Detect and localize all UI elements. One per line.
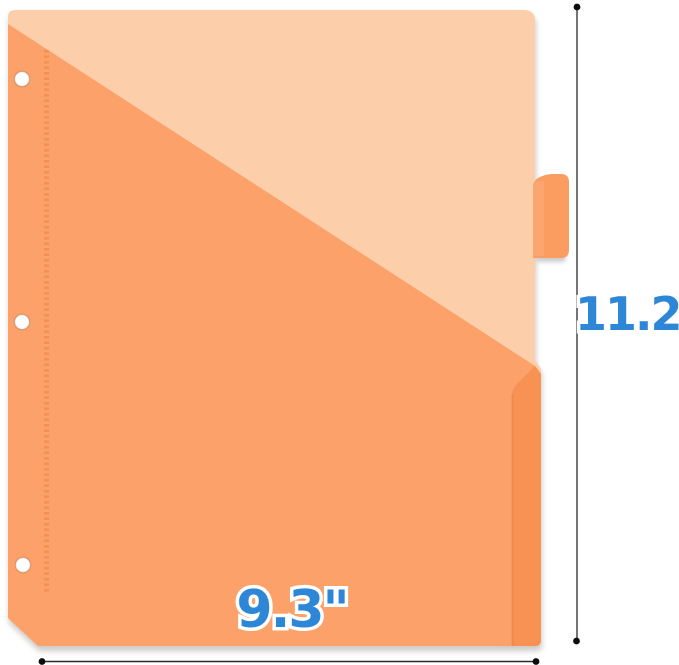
dimension-endpoint-dot [533,658,540,665]
height-dimension-label: 11.2" [575,291,679,337]
pocket-fold [512,366,541,646]
product-dimension-diagram: 11.2" 9.3" [0,0,679,665]
width-dimension-label: 9.3" [234,584,350,636]
dimension-endpoint-dot [574,4,581,11]
dimension-endpoint-dot [573,638,580,645]
tab-texture [533,181,544,256]
dimension-endpoint-dot [39,658,46,665]
horizontal-dimension-line [39,658,540,665]
